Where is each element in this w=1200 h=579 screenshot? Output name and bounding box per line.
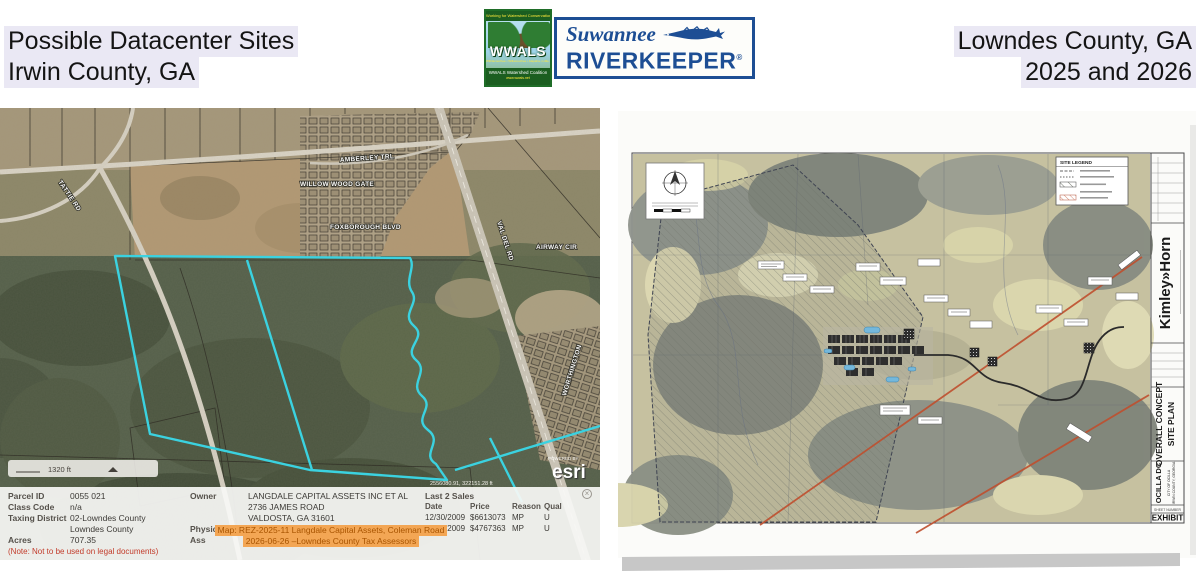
parcel-aerial-map[interactable]: AMBERLEY TRL WILLOW WOOD GATE FOXBOROUGH… xyxy=(0,108,600,560)
title-right: Lowndes County, GA 2025 and 2026 xyxy=(954,26,1196,88)
scan-shadow-right xyxy=(1190,125,1196,555)
caption-line1: Map: REZ-2025-11 Langdale Capital Assets… xyxy=(215,525,448,536)
esri-logo: esri xyxy=(552,462,586,483)
sales-header: Price xyxy=(470,502,490,511)
powered-by-label: POWERED BY xyxy=(548,456,579,461)
sale-reason: MP xyxy=(512,513,524,522)
legal-note: (Note: Not to be used on legal documents… xyxy=(8,547,158,556)
registered-mark: ® xyxy=(736,53,742,62)
wwals-url: www.wwals.net xyxy=(486,76,550,81)
parcel-info-panel: Parcel ID 0055 021 Class Code n/a Taxing… xyxy=(0,487,600,560)
sales-header: Reason xyxy=(512,502,541,511)
sale-date: 12/30/2009 xyxy=(425,513,465,522)
owner-label: Owner xyxy=(190,491,216,501)
owner-city: VALDOSTA, GA 31601 xyxy=(248,513,335,523)
wwals-name: WWALS xyxy=(486,43,550,59)
sheet-number-label: SHEET NUMBER xyxy=(1154,508,1181,512)
sales-title: Last 2 Sales xyxy=(425,491,474,501)
wwals-riverkeeper-logo: Working for Watershed Conservation WWALS… xyxy=(484,9,755,87)
map-caption-overlay: Map: REZ-2025-11 Langdale Capital Assets… xyxy=(200,525,462,547)
field-label: Taxing District xyxy=(8,513,66,523)
field-value: 707.35 xyxy=(70,535,96,545)
sale-qual: U xyxy=(544,513,550,522)
caption-line2: 2026-06-26 –Lowndes County Tax Assessors xyxy=(243,536,419,547)
page-header: Possible Datacenter Sites Irwin County, … xyxy=(0,0,1200,100)
title-right-line2: 2025 and 2026 xyxy=(1021,57,1196,88)
sheet-title-line2: SITE PLAN xyxy=(1166,402,1176,446)
owner-street: 2736 JAMES ROAD xyxy=(248,502,325,512)
sales-header: Qual xyxy=(544,502,562,511)
project-sub1: CITY OF OCILLA xyxy=(1167,469,1171,496)
wwals-footer: WWALS Watershed Coalition www.wwals.net xyxy=(486,68,550,85)
title-line2: Irwin County, GA xyxy=(4,57,199,88)
sheet-title-line1: OVERALL CONCEPT xyxy=(1154,381,1164,466)
sales-header: Date xyxy=(425,502,442,511)
sale-price: $6613073 xyxy=(470,513,506,522)
riverkeeper-wordmark: RIVERKEEPER® xyxy=(566,45,743,74)
field-label: Acres xyxy=(8,535,32,545)
title-line1: Possible Datacenter Sites xyxy=(4,26,298,57)
sturgeon-fish-icon xyxy=(662,26,726,42)
scale-bar: 1320 ft xyxy=(8,460,158,477)
field-value: n/a xyxy=(70,502,82,512)
field-value: 02-Lowndes County xyxy=(70,513,146,523)
owner-name: LANGDALE CAPITAL ASSETS INC ET AL xyxy=(248,491,408,501)
title-right-line1: Lowndes County, GA xyxy=(954,26,1196,57)
field-label: Class Code xyxy=(8,502,54,512)
suwannee-wordmark: Suwannee xyxy=(566,23,656,45)
close-icon[interactable]: × xyxy=(582,489,592,499)
site-plan-sheet: SITE LEGEND Kimley»Horn OVERALL CONCEPT … xyxy=(618,105,1200,574)
riverkeeper-logo: Suwannee RIVERKEEPER® xyxy=(554,17,755,79)
field-label: Parcel ID xyxy=(8,491,44,501)
wwals-coalition: WWALS Watershed Coalition xyxy=(486,68,550,76)
site-legend: SITE LEGEND xyxy=(1056,157,1128,205)
wwals-logo: Working for Watershed Conservation WWALS… xyxy=(484,9,552,87)
north-arrow-box xyxy=(646,163,704,219)
wwals-motto: Working for Watershed Conservation xyxy=(486,11,550,21)
legend-title: SITE LEGEND xyxy=(1060,160,1093,166)
scale-label: 1320 ft xyxy=(48,465,72,474)
project-name: OCILLA DC xyxy=(1154,462,1163,503)
wwals-rivers-list: Withlacoochee • Willacoochee • Alapaha •… xyxy=(486,59,550,63)
field-value: 0055 021 xyxy=(70,491,105,501)
title-left: Possible Datacenter Sites Irwin County, … xyxy=(4,26,298,88)
sale-price: $4767363 xyxy=(470,524,506,533)
field-value: Lowndes County xyxy=(70,524,133,534)
kimley-horn-logo: Kimley»Horn xyxy=(1157,237,1174,330)
sale-reason: MP xyxy=(512,524,524,533)
sale-qual: U xyxy=(544,524,550,533)
project-sub2: IRWIN COUNTY, GEORGIA xyxy=(1172,461,1176,504)
sheet-number: EXHIBIT xyxy=(1152,514,1184,523)
